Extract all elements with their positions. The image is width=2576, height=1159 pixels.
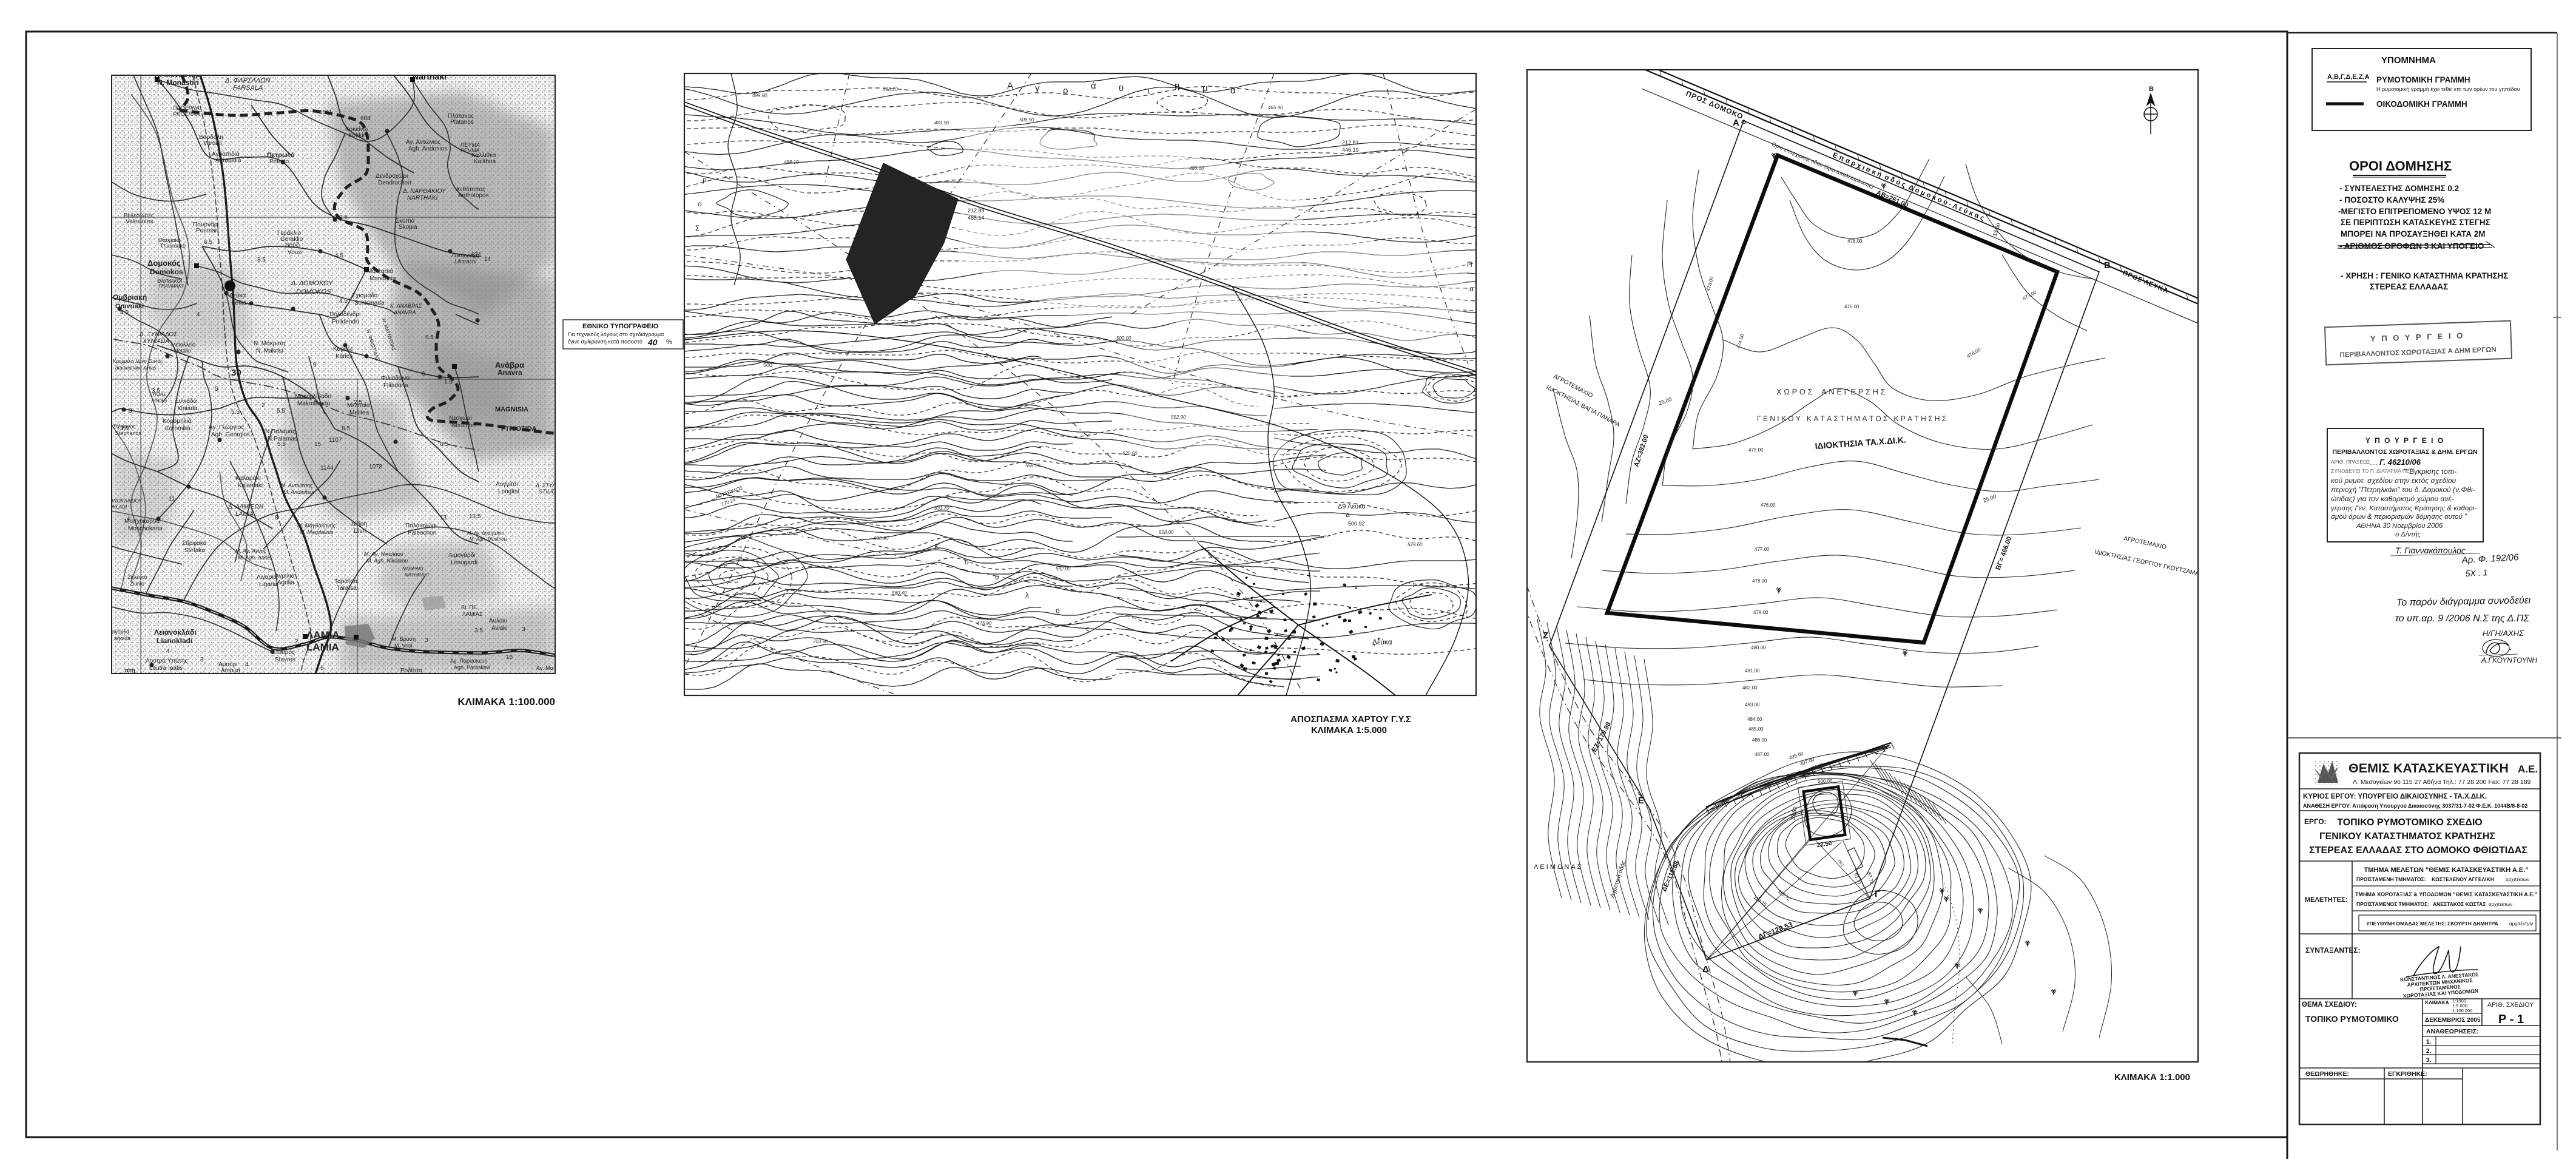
svg-text:A: A	[1733, 118, 1739, 128]
svg-text:ΚΛΙΜΑΚΑ 1:100.000: ΚΛΙΜΑΚΑ 1:100.000	[457, 696, 555, 708]
svg-text:4.5: 4.5	[120, 309, 129, 316]
svg-text:XINIAS: XINIAS	[150, 398, 167, 404]
svg-text:ΛΑΜΙΑΣ: ΛΑΜΙΑΣ	[462, 611, 483, 617]
svg-text:ΠΡΟΣ ΛΕΥΚΑ: ΠΡΟΣ ΛΕΥΚΑ	[2122, 269, 2170, 296]
svg-text:Anthotopos: Anthotopos	[458, 192, 489, 199]
svg-text:499.90: 499.90	[752, 93, 767, 98]
svg-text:486.00: 486.00	[1752, 737, 1767, 743]
svg-text:ΘΕΜΑ ΣΧΕΔΙΟΥ:: ΘΕΜΑ ΣΧΕΔΙΟΥ:	[2302, 1001, 2357, 1009]
svg-text:ΣΤΕΡΕΑΣ ΕΛΛΑΔΑΣ: ΣΤΕΡΕΑΣ ΕΛΛΑΔΑΣ	[2370, 282, 2448, 291]
svg-text:Xiniada: Xiniada	[177, 405, 198, 412]
svg-text:Thavmako: Thavmako	[160, 243, 186, 249]
svg-text:ΑΝΑΘΕΣΗ ΕΡΓΟΥ: Απόφαση Υπουργο: ΑΝΑΘΕΣΗ ΕΡΓΟΥ: Απόφαση Υπουργού Δικαιοσύ…	[2303, 803, 2527, 809]
svg-text:Velesiotes: Velesiotes	[126, 218, 153, 225]
svg-text:4: 4	[410, 648, 414, 655]
svg-text:-ΜΕΓΙΣΤΟ ΕΠΙΤΡΕΠΟΜΕΝΟ ΥΨΟΣ 12: -ΜΕΓΙΣΤΟ ΕΠΙΤΡΕΠΟΜΕΝΟ ΥΨΟΣ 12 Μ	[2338, 207, 2491, 216]
svg-text:περιοχή "Πετρηλκάκι" του δ. Δο: περιοχή "Πετρηλκάκι" του δ. Δομοκού (ν.Φ…	[2331, 485, 2475, 494]
svg-text:ΚΩΣΤΕΛΕΝΟΥ ΑΓΓΕΛΙΚΗ: ΚΩΣΤΕΛΕΝΟΥ ΑΓΓΕΛΙΚΗ	[2432, 876, 2494, 882]
svg-text:Anavra: Anavra	[497, 368, 522, 377]
svg-text:Avlaki: Avlaki	[491, 625, 508, 632]
svg-text:α: α	[1230, 86, 1236, 96]
svg-text:4: 4	[127, 516, 130, 522]
svg-text:3: 3	[200, 657, 204, 663]
svg-text:ΑΓΡΟΤΕΜΑΧΙΟ: ΑΓΡΟΤΕΜΑΧΙΟ	[2123, 535, 2167, 551]
svg-text:Koromilia: Koromilia	[165, 425, 191, 432]
svg-text:τ: τ	[1147, 86, 1150, 96]
svg-text:Metalio: Metalio	[174, 348, 191, 354]
svg-text:Υ Π Ο Υ Ρ Γ Ε Ι Ο: Υ Π Ο Υ Ρ Γ Ε Ι Ο	[2370, 331, 2465, 343]
svg-text:Λειανοκλάδι: Λειανοκλάδι	[154, 628, 197, 637]
svg-text:6.5: 6.5	[425, 334, 434, 341]
svg-text:ο: ο	[1056, 606, 1060, 615]
svg-text:ΤΟΠΙΚΟ ΡΥΜΟΤΟΜΙΚΟ: ΤΟΠΙΚΟ ΡΥΜΟΤΟΜΙΚΟ	[2305, 1014, 2399, 1024]
svg-text:4: 4	[245, 661, 249, 668]
svg-text:Α,Β,Γ,Δ,Ε,Ζ,Α: Α,Β,Γ,Δ,Ε,Ζ,Α	[2327, 73, 2370, 81]
svg-text:5.5: 5.5	[277, 441, 286, 448]
svg-text:Νεοχώρι: Νεοχώρι	[449, 414, 472, 422]
svg-text:M. Agh. Nikolaou: M. Agh. Nikolaou	[366, 558, 408, 564]
svg-text:473.00: 473.00	[1705, 275, 1715, 291]
svg-text:212.81: 212.81	[1342, 140, 1359, 146]
svg-text:9.5: 9.5	[339, 214, 348, 221]
svg-text:NARTHAKI: NARTHAKI	[407, 195, 438, 201]
svg-text:465.14: 465.14	[968, 215, 985, 221]
svg-text:Η/ΓΗ/ΑΧΗΣ: Η/ΓΗ/ΑΧΗΣ	[2483, 629, 2524, 638]
svg-text:ΑΝΕΣΤΑΚΟΣ ΚΩΣΤΑΣ: ΑΝΕΣΤΑΚΟΣ ΚΩΣΤΑΣ	[2433, 901, 2486, 907]
svg-text:Λ Ε Ι Μ Ω Ν Α Σ: Λ Ε Ι Μ Ω Ν Α Σ	[1534, 863, 1582, 871]
svg-text:Δ. ΛΑΜΙΕΩΝ: Δ. ΛΑΜΙΕΩΝ	[228, 504, 264, 510]
svg-text:Vouzi: Vouzi	[288, 249, 302, 256]
svg-text:1078: 1078	[369, 464, 383, 470]
svg-text:ο Δ/ντής: ο Δ/ντής	[2395, 531, 2421, 538]
svg-text:Neochori: Neochori	[451, 422, 476, 429]
svg-text:ΠΕΡΙΒΑΛΛΟΝΤΟΣ ΧΩΡΟΤΑΞΙΑΣ Α: ΠΕΡΙΒΑΛΛΟΝΤΟΣ ΧΩΡΟΤΑΞΙΑΣ Α ΔΗΜ ΕΡΓΩΝ	[2339, 346, 2497, 359]
svg-text:LIANOKLADI: LIANOKLADI	[98, 504, 127, 510]
svg-text:Domokos: Domokos	[150, 268, 183, 276]
svg-text:ϋ: ϋ	[1119, 83, 1124, 93]
svg-text:γ: γ	[1035, 83, 1040, 93]
svg-text:E: E	[1638, 796, 1644, 806]
svg-text:1.: 1.	[2426, 1039, 2432, 1046]
svg-text:Δ9 Λεύκα: Δ9 Λεύκα	[1338, 503, 1366, 510]
svg-text:ΜΕΛΕΤΗΤΕΣ:: ΜΕΛΕΤΗΤΕΣ:	[2305, 896, 2347, 904]
svg-text:1.5: 1.5	[444, 379, 453, 385]
svg-text:5Χ . 1: 5Χ . 1	[2465, 567, 2487, 578]
svg-text:Δ. ΣΤΥΛ: Δ. ΣΤΥΛ	[535, 482, 556, 488]
svg-text:FTHIOTIDA: FTHIOTIDA	[501, 425, 537, 433]
svg-text:25.00: 25.00	[1657, 396, 1673, 407]
svg-text:ANAVRA: ANAVRA	[393, 309, 416, 316]
svg-text:Zileito: Zileito	[130, 581, 144, 587]
svg-text:500.00: 500.00	[1116, 336, 1131, 341]
svg-text:15: 15	[314, 441, 322, 448]
svg-text:600.90: 600.90	[874, 536, 889, 541]
svg-text:ΕΘΝΙΚΟ ΤΥΠΟΓΡΑΦΕΙΟ: ΕΘΝΙΚΟ ΤΥΠΟΓΡΑΦΕΙΟ	[582, 323, 659, 330]
svg-text:Longitsi: Longitsi	[498, 488, 519, 495]
svg-text:Δ: Δ	[1346, 512, 1350, 519]
svg-text:1144: 1144	[320, 465, 334, 471]
svg-text:Μ. Αγ. Άννης: Μ. Αγ. Άννης	[235, 548, 267, 554]
svg-text:484.00: 484.00	[1747, 717, 1762, 722]
svg-text:THAVMAKI: THAVMAKI	[158, 283, 183, 289]
svg-text:3.5: 3.5	[474, 627, 483, 634]
svg-text:212.89: 212.89	[968, 208, 985, 214]
svg-text:33.50: 33.50	[1790, 806, 1798, 820]
svg-text:ΣΥΝΟΔΕΥΕΙ ΤΟ Π. ΔΙΑΤΑΓΜΑ ΠΕΡΙ: ΣΥΝΟΔΕΥΕΙ ΤΟ Π. ΔΙΑΤΑΓΜΑ ΠΕΡΙ	[2331, 468, 2415, 474]
svg-text:M. Andinitsis: M. Andinitsis	[283, 489, 314, 495]
svg-text:ΕΓΚΡΙΘΗΚΕ:: ΕΓΚΡΙΘΗΚΕ:	[2388, 1070, 2427, 1078]
svg-text:Η ρυμοτομική γραμμή έχει τεθεί: Η ρυμοτομική γραμμή έχει τεθεί επι των ο…	[2376, 86, 2520, 92]
svg-text:Ξυνιάδα: Ξυνιάδα	[175, 397, 197, 405]
svg-text:ΘΕΩΡΗΘΗΚΕ:: ΘΕΩΡΗΘΗΚΕ:	[2305, 1070, 2349, 1078]
svg-text:Αρ. Φ. 192/06: Αρ. Φ. 192/06	[2461, 552, 2519, 566]
svg-text:Karies: Karies	[335, 353, 352, 360]
svg-text:Ligaria: Ligaria	[259, 581, 277, 588]
svg-text:ΤΜΗΜΑ ΜΕΛΕΤΩΝ "ΘΕΜΙΣ ΚΑΤΑΣΚΕΥΑ: ΤΜΗΜΑ ΜΕΛΕΤΩΝ "ΘΕΜΙΣ ΚΑΤΑΣΚΕΥΑΣΤΙΚΗ Α.Ε.…	[2364, 867, 2529, 874]
svg-text:N. Monastiri: N. Monastiri	[157, 78, 199, 87]
svg-text:11: 11	[169, 496, 175, 502]
svg-text:703.90: 703.90	[813, 639, 828, 644]
svg-text:Γ Ε Ν Ι Κ Ο Υ Κ Α Τ Α Σ Τ Η: Γ Ε Ν Ι Κ Ο Υ Κ Α Τ Α Σ Τ Η Μ Α Τ Ο Σ Κ …	[1757, 414, 1946, 423]
svg-text:ΣΤΕΡΕΑΣ ΕΛΛΑΔΑΣ ΣΤΟ ΔΟΜΟΚΟ ΦΘΙ: ΣΤΕΡΕΑΣ ΕΛΛΑΔΑΣ ΣΤΟ ΔΟΜΟΚΟ ΦΘΙΩΤΙΔΑΣ	[2309, 845, 2527, 856]
svg-text:2.: 2.	[2426, 1048, 2432, 1055]
svg-text:ΜΠΟΡΕΙ ΝΑ ΠΡΟΣΑΥΞΗΘΕΙ ΚΑΤΑ 2Μ: ΜΠΟΡΕΙ ΝΑ ΠΡΟΣΑΥΞΗΘΕΙ ΚΑΤΑ 2Μ	[2341, 229, 2485, 238]
svg-text:Vardali: Vardali	[203, 140, 221, 147]
svg-text:Δ. ΔΟΜΟΚΟΥ: Δ. ΔΟΜΟΚΟΥ	[291, 280, 333, 287]
svg-text:Πολυδένδρι: Πολυδένδρι	[329, 311, 360, 318]
svg-text:Μ. Αγ. Δημητρίου: Μ. Αγ. Δημητρίου	[467, 530, 505, 536]
svg-text:481.90: 481.90	[934, 120, 949, 126]
svg-text:LAMIA: LAMIA	[306, 641, 339, 653]
svg-text:2: 2	[295, 638, 298, 645]
svg-text:ΚΛΙΜΑΚΑ: ΚΛΙΜΑΚΑ	[2425, 999, 2449, 1005]
svg-text:478.00: 478.00	[1752, 578, 1767, 584]
svg-text:5.5: 5.5	[231, 409, 240, 416]
svg-text:482.00: 482.00	[1742, 685, 1758, 691]
svg-text:Ταράτσα: Ταράτσα	[334, 578, 357, 585]
svg-text:ΣΥΝΤΑΞΑΝΤΕΣ:: ΣΥΝΤΑΞΑΝΤΕΣ:	[2305, 946, 2361, 955]
svg-text:Τ. Γιαννακόπουλος: Τ. Γιαννακόπουλος	[2395, 546, 2466, 555]
svg-text:- ΣΥΝΤΕΛΕΣΤΗΣ ΔΟΜΗΣΗΣ 0.2: - ΣΥΝΤΕΛΕΣΤΗΣ ΔΟΜΗΣΗΣ 0.2	[2339, 184, 2459, 193]
svg-text:ά: ά	[1091, 81, 1096, 91]
svg-text:Μ. Βρύση: Μ. Βρύση	[392, 636, 416, 642]
svg-text:6.5: 6.5	[440, 441, 448, 448]
svg-text:Paleochori: Paleochori	[408, 530, 436, 536]
svg-text:ΠΡΟΪΣΤΑΜΕΝΟΣ ΤΜΗΜΑΤΟΣ:: ΠΡΟΪΣΤΑΜΕΝΟΣ ΤΜΗΜΑΤΟΣ:	[2356, 901, 2429, 907]
svg-text:Για τεχνικούς λόγους στο σχεδι: Για τεχνικούς λόγους στο σχεδιάγραμμα	[568, 331, 664, 337]
svg-text:4: 4	[166, 648, 170, 655]
svg-text:ΝΑΘΡΑΚΙ: ΝΑΘΡΑΚΙ	[402, 566, 423, 572]
svg-text:το υπ.αρ. 9 /2006 Ν.Σ της: το υπ.αρ. 9 /2006 Ν.Σ της Δ.ΠΣ	[2395, 613, 2530, 624]
svg-text:Στίρφακα: Στίρφακα	[182, 539, 207, 547]
svg-text:Α: Α	[1007, 81, 1013, 91]
svg-text:Limogardi: Limogardi	[451, 559, 477, 566]
svg-text:13: 13	[440, 515, 447, 521]
svg-text:115.72: 115.72	[1777, 888, 1792, 902]
svg-text:" Έγκρισης τοπι-: " Έγκρισης τοπι-	[2404, 467, 2456, 476]
svg-text:Φιλιαδώνα: Φιλιαδώνα	[381, 374, 410, 382]
svg-text:α: α	[1469, 285, 1474, 293]
svg-text:481.00: 481.00	[1745, 668, 1760, 674]
svg-text:M. Magdalinis: M. Magdalinis	[300, 529, 334, 535]
svg-text:474.00: 474.00	[1736, 333, 1745, 349]
svg-text:LAMIA: LAMIA	[235, 511, 254, 518]
svg-text:Δ. ΛΕΙΑΝΟΚΛΑΔΙΟΥ: Δ. ΛΕΙΑΝΟΚΛΑΔΙΟΥ	[96, 498, 142, 504]
svg-text:3: 3	[425, 637, 428, 644]
svg-text:Ζηλευτό: Ζηλευτό	[127, 574, 147, 580]
svg-text:STILID: STILID	[539, 488, 556, 495]
svg-text:Το παρόν διάγραμμα συνοδεύει: Το παρόν διάγραμμα συνοδεύει	[2396, 595, 2531, 608]
svg-text:Filiadona: Filiadona	[383, 382, 408, 389]
svg-text:Platanos: Platanos	[450, 119, 474, 126]
svg-text:1107: 1107	[329, 437, 342, 444]
svg-text:Δενδροχώρι: Δενδροχώρι	[376, 172, 408, 180]
svg-text:ΣΚΟΥΡΤΗ ΔΗΜΗΤΡΑ: ΣΚΟΥΡΤΗ ΔΗΜΗΤΡΑ	[2447, 921, 2498, 927]
svg-text:5.5: 5.5	[277, 408, 285, 414]
svg-text:γερσης Γεν. Καταστήματος Κράτη: γερσης Γεν. Καταστήματος Κράτησης & καθο…	[2331, 505, 2477, 512]
svg-text:487.00: 487.00	[1755, 752, 1770, 757]
svg-text:4: 4	[197, 311, 200, 318]
svg-text:Δ. ΦΑΡΣΑΛΩΝ: Δ. ΦΑΡΣΑΛΩΝ	[224, 77, 271, 84]
svg-text:ΡΥΜΟΤΟΜΙΚΗ ΓΡΑΜΜΗ: ΡΥΜΟΤΟΜΙΚΗ ΓΡΑΜΜΗ	[2376, 75, 2470, 84]
svg-text:22.50: 22.50	[1816, 840, 1833, 849]
svg-text:M. Agh. Annis: M. Agh. Annis	[238, 555, 272, 561]
svg-text:ΑΡΙΘ. ΣΧΕΔΙΟΥ: ΑΡΙΘ. ΣΧΕΔΙΟΥ	[2487, 1001, 2534, 1009]
svg-text:Kalamaki: Kalamaki	[238, 482, 263, 489]
svg-text:Lefka: Lefka	[232, 300, 247, 306]
svg-text:500.00: 500.00	[1818, 779, 1833, 784]
svg-text:480.00: 480.00	[1189, 166, 1204, 171]
svg-text:ΙΔΙΟΚΤΗΣΙΑ ΤΑ.Χ.ΔΙ.Κ.: ΙΔΙΟΚΤΗΣΙΑ ΤΑ.Χ.ΔΙ.Κ.	[1815, 435, 1906, 451]
svg-text:ΥΠΕΥΘΥΝΗ ΟΜΑΔΑΣ ΜΕΛΕΤΗΣ:: ΥΠΕΥΘΥΝΗ ΟΜΑΔΑΣ ΜΕΛΕΤΗΣ:	[2366, 921, 2447, 927]
svg-text:3: 3	[129, 408, 132, 414]
svg-text:Σχισμάδα: Σχισμάδα	[352, 292, 378, 299]
svg-text:ΚΛΙΜΑΚΑ 1:1.000: ΚΛΙΜΑΚΑ 1:1.000	[2114, 1072, 2190, 1083]
svg-text:Αγ. Μα: Αγ. Μα	[536, 665, 553, 671]
svg-text:30: 30	[231, 368, 241, 378]
svg-text:483.00: 483.00	[1745, 702, 1760, 708]
svg-text:87.72: 87.72	[1866, 871, 1875, 885]
svg-text:ΒΓ= 466.00: ΒΓ= 466.00	[1995, 536, 2014, 571]
svg-text:3: 3	[522, 626, 525, 633]
svg-text:%: %	[666, 339, 672, 346]
svg-text:Μεταλλείο: Μεταλλείο	[171, 342, 195, 348]
svg-text:Δ. ΞΥΝΙΑΔΟΣ: Δ. ΞΥΝΙΑΔΟΣ	[139, 331, 178, 338]
svg-text:Kokkino: Kokkino	[348, 132, 370, 139]
svg-text:Agrapidia: Agrapidia	[215, 157, 241, 164]
svg-text:61.71: 61.71	[1853, 873, 1862, 886]
svg-text:B: B	[2149, 86, 2154, 93]
svg-text:Λυκόρραχη: Λυκόρραχη	[451, 252, 479, 258]
svg-text:14: 14	[484, 256, 491, 263]
svg-text:Δομοκός: Δομοκός	[147, 258, 181, 268]
svg-text:631.70: 631.70	[934, 505, 949, 511]
svg-text:508.90: 508.90	[1019, 117, 1034, 123]
svg-text:PROERNA: PROERNA	[173, 111, 200, 117]
svg-text:1:100.000: 1:100.000	[2452, 1008, 2472, 1013]
svg-text:ΑΝΑΘΕΩΡΗΣΕΙΣ:: ΑΝΑΘΕΩΡΗΣΕΙΣ:	[2426, 1028, 2479, 1035]
svg-text:Λιμογάρδι: Λιμογάρδι	[448, 552, 475, 559]
svg-text:Αυλάκι: Αυλάκι	[489, 617, 507, 624]
svg-text:476.00: 476.00	[1761, 502, 1776, 508]
svg-text:σμού όρων & περιορισμών δόμηση: σμού όρων & περιορισμών δόμησης αυτού "	[2331, 513, 2467, 521]
svg-text:DOMOKOS: DOMOKOS	[296, 288, 331, 296]
svg-text:4.5: 4.5	[335, 252, 343, 259]
svg-text:B: B	[2104, 260, 2111, 271]
svg-text:μ: μ	[1202, 83, 1208, 93]
svg-text:Χ Ω Ρ Ο Σ Α Ν Ε Γ Ε Ρ Σ Η Σ: Χ Ω Ρ Ο Σ Α Ν Ε Γ Ε Ρ Σ Η Σ	[1776, 387, 1886, 396]
svg-text:Melitea: Melitea	[349, 410, 369, 416]
svg-text:495.00: 495.00	[1789, 751, 1805, 761]
svg-text:Moschokaria: Moschokaria	[128, 525, 163, 532]
svg-text:Dendrochori: Dendrochori	[378, 180, 411, 186]
svg-text:Σ: Σ	[695, 224, 700, 232]
svg-text:13.5: 13.5	[469, 513, 481, 520]
svg-text:Αγριλιά: Αγριλιά	[275, 572, 295, 579]
svg-text:drained lake Xinias: drained lake Xinias	[115, 365, 157, 371]
svg-text:Γ. 46210/06: Γ. 46210/06	[2379, 458, 2421, 467]
svg-text:498.20: 498.20	[883, 87, 898, 92]
svg-text:Poumari: Poumari	[196, 228, 218, 234]
svg-text:Λιγαριά: Λιγαριά	[257, 573, 277, 581]
svg-text:Taratsa: Taratsa	[337, 585, 357, 592]
svg-text:465.90: 465.90	[1268, 105, 1283, 110]
svg-text:478.00: 478.00	[1847, 238, 1863, 244]
svg-text:8.5: 8.5	[342, 425, 350, 432]
svg-text:M. Agh. Dimitriou: M. Agh. Dimitriou	[470, 536, 507, 542]
svg-text:520.50: 520.50	[1122, 451, 1138, 456]
svg-text:NATHRAKI: NATHRAKI	[405, 572, 430, 578]
svg-text:XYNIADA: XYNIADA	[142, 338, 169, 345]
svg-text:Αγ. Γεώργιος: Αγ. Γεώργιος	[209, 424, 244, 431]
svg-text:ΑΘΗΝΑ 30 Νοεμβρίου 2006: ΑΘΗΝΑ 30 Νοεμβρίου 2006	[2356, 522, 2443, 530]
svg-text:ΑΡΙΘ. ΠΡΑΞΕΩΣ: ΑΡΙΘ. ΠΡΑΞΕΩΣ	[2331, 459, 2370, 465]
svg-text:562.00: 562.00	[1056, 566, 1071, 572]
svg-text:Agrilia: Agrilia	[277, 579, 294, 586]
svg-text:Lianokladi: Lianokladi	[157, 637, 192, 645]
svg-text:N. Makrisi: N. Makrisi	[256, 348, 283, 354]
svg-text:ΙΔΙΟΚΤΗΣΙΑΣ ΓΕΩΡΓΙΟΥ ΓΚΟΥΤΖΑΜΑ: ΙΔΙΟΚΤΗΣΙΑΣ ΓΕΩΡΓΙΟΥ ΓΚΟΥΤΖΑΜΑΝΗ	[2094, 549, 2208, 579]
svg-text:Α.Ε.: Α.Ε.	[2518, 763, 2538, 775]
svg-text:ΔΓ=128.53: ΔΓ=128.53	[1757, 920, 1794, 941]
svg-text:473.00: 473.00	[2022, 289, 2038, 301]
svg-text:Αγ. Παρασκευή: Αγ. Παρασκευή	[450, 658, 487, 664]
svg-text:ΑΖ=392.00: ΑΖ=392.00	[1633, 434, 1650, 468]
svg-text:ΘΕΜΙΣ ΚΑΤΑΣΚΕΥΑΣΤΙΚΗ: ΘΕΜΙΣ ΚΑΤΑΣΚΕΥΑΣΤΙΚΗ	[2348, 761, 2509, 775]
svg-text:ΕΡΓΟ:: ΕΡΓΟ:	[2304, 817, 2327, 826]
svg-text:ΚΥΡΙΟΣ ΕΡΓΟΥ: ΥΠΟΥΡΓΕΙΟ ΔΙΚΑΙΟ: ΚΥΡΙΟΣ ΕΡΓΟΥ: ΥΠΟΥΡΓΕΙΟ ΔΙΚΑΙΟΣΥΝΗΣ - ΤΑ…	[2303, 793, 2487, 800]
svg-text:Petroto: Petroto	[269, 158, 289, 165]
svg-text:Narthaki: Narthaki	[413, 72, 447, 81]
svg-text:Stavros: Stavros	[275, 657, 295, 663]
svg-text:.....: .....	[2370, 460, 2378, 466]
svg-text:Καρυές: Καρυές	[333, 345, 353, 353]
svg-text:Μαντασιά: Μαντασιά	[367, 268, 393, 275]
svg-text:4.5: 4.5	[339, 298, 348, 305]
svg-text:Polidendri: Polidendri	[332, 319, 359, 325]
svg-text:8: 8	[275, 515, 278, 521]
svg-text:Skopia: Skopia	[399, 224, 417, 231]
svg-text:Agh. Georgios: Agh. Georgios	[211, 431, 250, 438]
svg-text:3.5: 3.5	[152, 388, 160, 394]
svg-text:25.00: 25.00	[1982, 493, 1997, 504]
svg-text:Κρημμένη λίμνη Ξυνιάς: Κρημμένη λίμνη Ξυνιάς	[113, 359, 163, 364]
svg-text:500.92: 500.92	[1348, 521, 1365, 527]
svg-text:- ΑΡΙΘΜΟΣ ΟΡΟΦΩΝ 3 ΚΑΙ ΥΠΟΓΕΙΟ: - ΑΡΙΘΜΟΣ ΟΡΟΦΩΝ 3 ΚΑΙ ΥΠΟΓΕΙΟ	[2339, 242, 2484, 251]
svg-text:Μ. Αγ. Νικολάου: Μ. Αγ. Νικολάου	[364, 551, 403, 557]
svg-text:Π: Π	[1467, 260, 1472, 269]
svg-text:1011: 1011	[319, 109, 332, 116]
svg-text:αγούλα: αγούλα	[112, 629, 129, 635]
svg-text:Λογγίτσι: Λογγίτσι	[496, 481, 518, 488]
svg-text:16: 16	[506, 654, 513, 661]
svg-text:ΚΛΙΜΑΚΑ 1:5.000: ΚΛΙΜΑΚΑ 1:5.000	[1311, 725, 1387, 735]
svg-text:ΤΟΠΙΚΟ ΡΥΜΟΤΟΜΙΚΟ ΣΧΕΔΙΟ: ΤΟΠΙΚΟ ΡΥΜΟΤΟΜΙΚΟ ΣΧΕΔΙΟ	[2337, 817, 2483, 828]
svg-text:ΛΑΜΙΑ: ΛΑΜΙΑ	[306, 629, 340, 641]
svg-text:ΔΕΚΕΜΒΡΙΟΣ 2005: ΔΕΚΕΜΒΡΙΟΣ 2005	[2425, 1017, 2481, 1024]
svg-text:Κ: Κ	[934, 542, 939, 551]
svg-text:- ΠΟΣΟΣΤΟ ΚΑΛΥΨΗΣ 25%: - ΠΟΣΟΣΤΟ ΚΑΛΥΨΗΣ 25%	[2339, 195, 2444, 204]
svg-text:475.00: 475.00	[1748, 447, 1764, 453]
svg-text:Ρ - 1: Ρ - 1	[2498, 1013, 2524, 1026]
svg-text:488.10: 488.10	[784, 160, 799, 165]
svg-text:αρχιτέκτων: αρχιτέκτων	[2489, 902, 2512, 907]
svg-text:Ν. Μάκριση: Ν. Μάκριση	[254, 340, 285, 347]
svg-text:ΥΠΟΜΝΗΜΑ: ΥΠΟΜΝΗΜΑ	[2381, 55, 2436, 66]
svg-text:MAGNISIA: MAGNISIA	[495, 406, 528, 413]
svg-text:Λεύκα: Λεύκα	[229, 292, 246, 299]
svg-text:Μακρολίβαδο: Μακρολίβαδο	[295, 393, 331, 400]
svg-text:ώτιδας) για τον καθορισμό χώρο: ώτιδας) για τον καθορισμό χώρου ανέ-	[2331, 495, 2454, 503]
svg-text:500: 500	[763, 362, 772, 368]
svg-text:ΑΠΟΣΠΑΣΜΑ ΧΑΡΤΟΥ Γ.Υ.Σ: ΑΠΟΣΠΑΣΜΑ ΧΑΡΤΟΥ Γ.Υ.Σ	[1290, 714, 1411, 725]
svg-text:ΕΖ=179.98: ΕΖ=179.98	[1591, 721, 1613, 753]
svg-text:3.5: 3.5	[120, 425, 129, 432]
svg-text:9: 9	[313, 362, 317, 368]
svg-text:Λουτρά Υπάτης: Λουτρά Υπάτης	[146, 657, 187, 664]
svg-text:Μ. Μαγδαληνής: Μ. Μαγδαληνής	[297, 522, 336, 529]
svg-text:Agh. Andonios: Agh. Andonios	[408, 146, 448, 152]
svg-text:Λεύκα: Λεύκα	[1372, 638, 1392, 646]
svg-text:Δίβρη: Δίβρη	[351, 520, 367, 527]
svg-text:ρ: ρ	[703, 175, 707, 184]
svg-text:552.90: 552.90	[1171, 414, 1186, 420]
svg-text:έγινε σμίκρυνση κατά ποσοστό: έγινε σμίκρυνση κατά ποσοστό	[568, 339, 642, 345]
svg-text:Α.ΓΚΟΥΝΤΟΥΝΗ: Α.ΓΚΟΥΝΤΟΥΝΗ	[2481, 656, 2537, 664]
svg-text:Κ. ΑΝΑΒΡΑΣ: Κ. ΑΝΑΒΡΑΣ	[390, 303, 422, 309]
svg-text:ΟΡΟΙ ΔΟΜΗΣΗΣ: ΟΡΟΙ ΔΟΜΗΣΗΣ	[2349, 158, 2452, 174]
svg-text:5: 5	[215, 386, 218, 393]
svg-text:ΠΡΟΪΣΤΑΜΕΝΗ ΤΜΗΜΑΤΟΣ:: ΠΡΟΪΣΤΑΜΕΝΗ ΤΜΗΜΑΤΟΣ:	[2356, 876, 2426, 882]
svg-text:ρ: ρ	[1063, 86, 1068, 96]
svg-text:λ: λ	[1025, 591, 1029, 600]
svg-text:ο: ο	[698, 200, 702, 208]
svg-text:Divri: Divri	[354, 528, 366, 535]
svg-text:Σταυρός: Σταυρός	[272, 649, 295, 656]
svg-text:Κορομηλιά: Κορομηλιά	[163, 417, 192, 425]
svg-text:Αγ. Αντώνιος: Αγ. Αντώνιος	[406, 138, 440, 146]
svg-text:2: 2	[261, 402, 265, 409]
svg-text:529.60: 529.60	[1408, 542, 1423, 547]
svg-text:Ομβριακή: Ομβριακή	[113, 293, 147, 302]
svg-text:Makrolivado: Makrolivado	[297, 400, 330, 407]
svg-text:Παλαιοχώρι: Παλαιοχώρι	[405, 522, 437, 529]
svg-text:475.90: 475.90	[977, 621, 992, 626]
svg-text:αρχιτέκτων: αρχιτέκτων	[2506, 877, 2529, 882]
svg-text:ΔΕΞ: ΔΕΞ	[1837, 859, 1844, 867]
svg-text:ΓΕΝΙΚΟΥ ΚΑΤΑΣΤΗΜΑΤΟΣ ΚΡΑΤΗΣΗΣ: ΓΕΝΙΚΟΥ ΚΑΤΑΣΤΗΜΑΤΟΣ ΚΡΑΤΗΣΗΣ	[2319, 831, 2495, 842]
svg-text:ΒΙ. ΠΕ.: ΒΙ. ΠΕ.	[461, 604, 479, 610]
